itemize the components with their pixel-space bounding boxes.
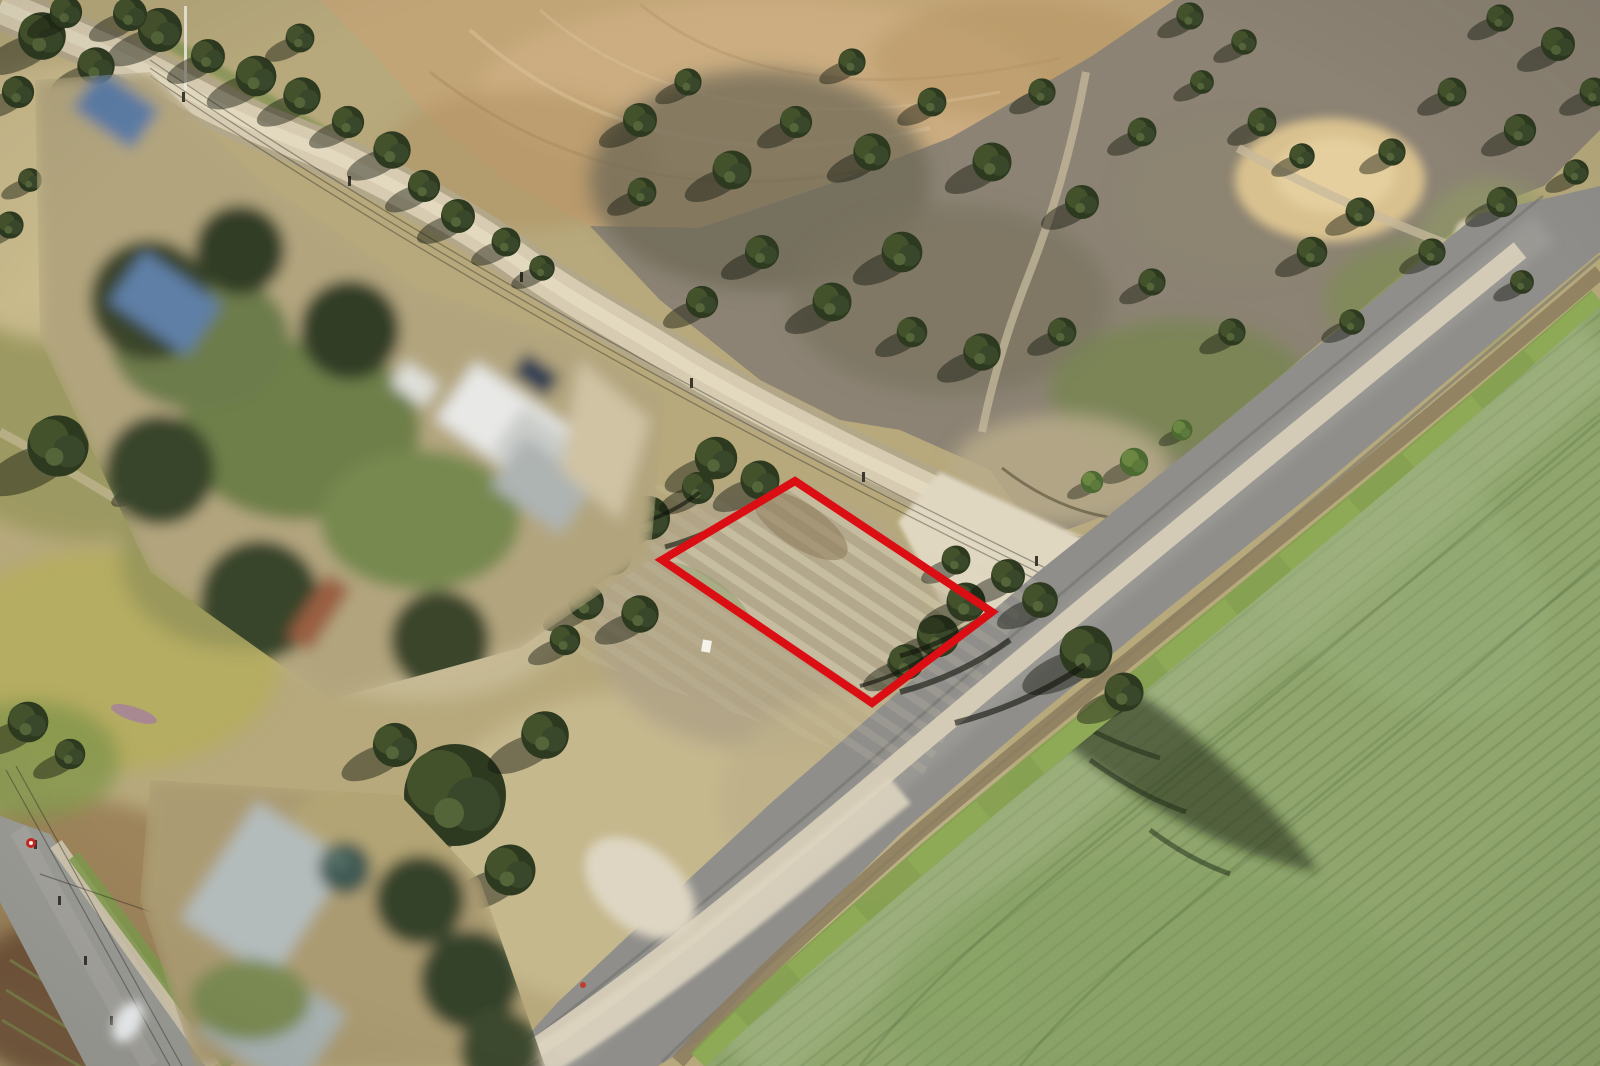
photo-vignette bbox=[0, 0, 1600, 1066]
aerial-photo bbox=[0, 0, 1600, 1066]
